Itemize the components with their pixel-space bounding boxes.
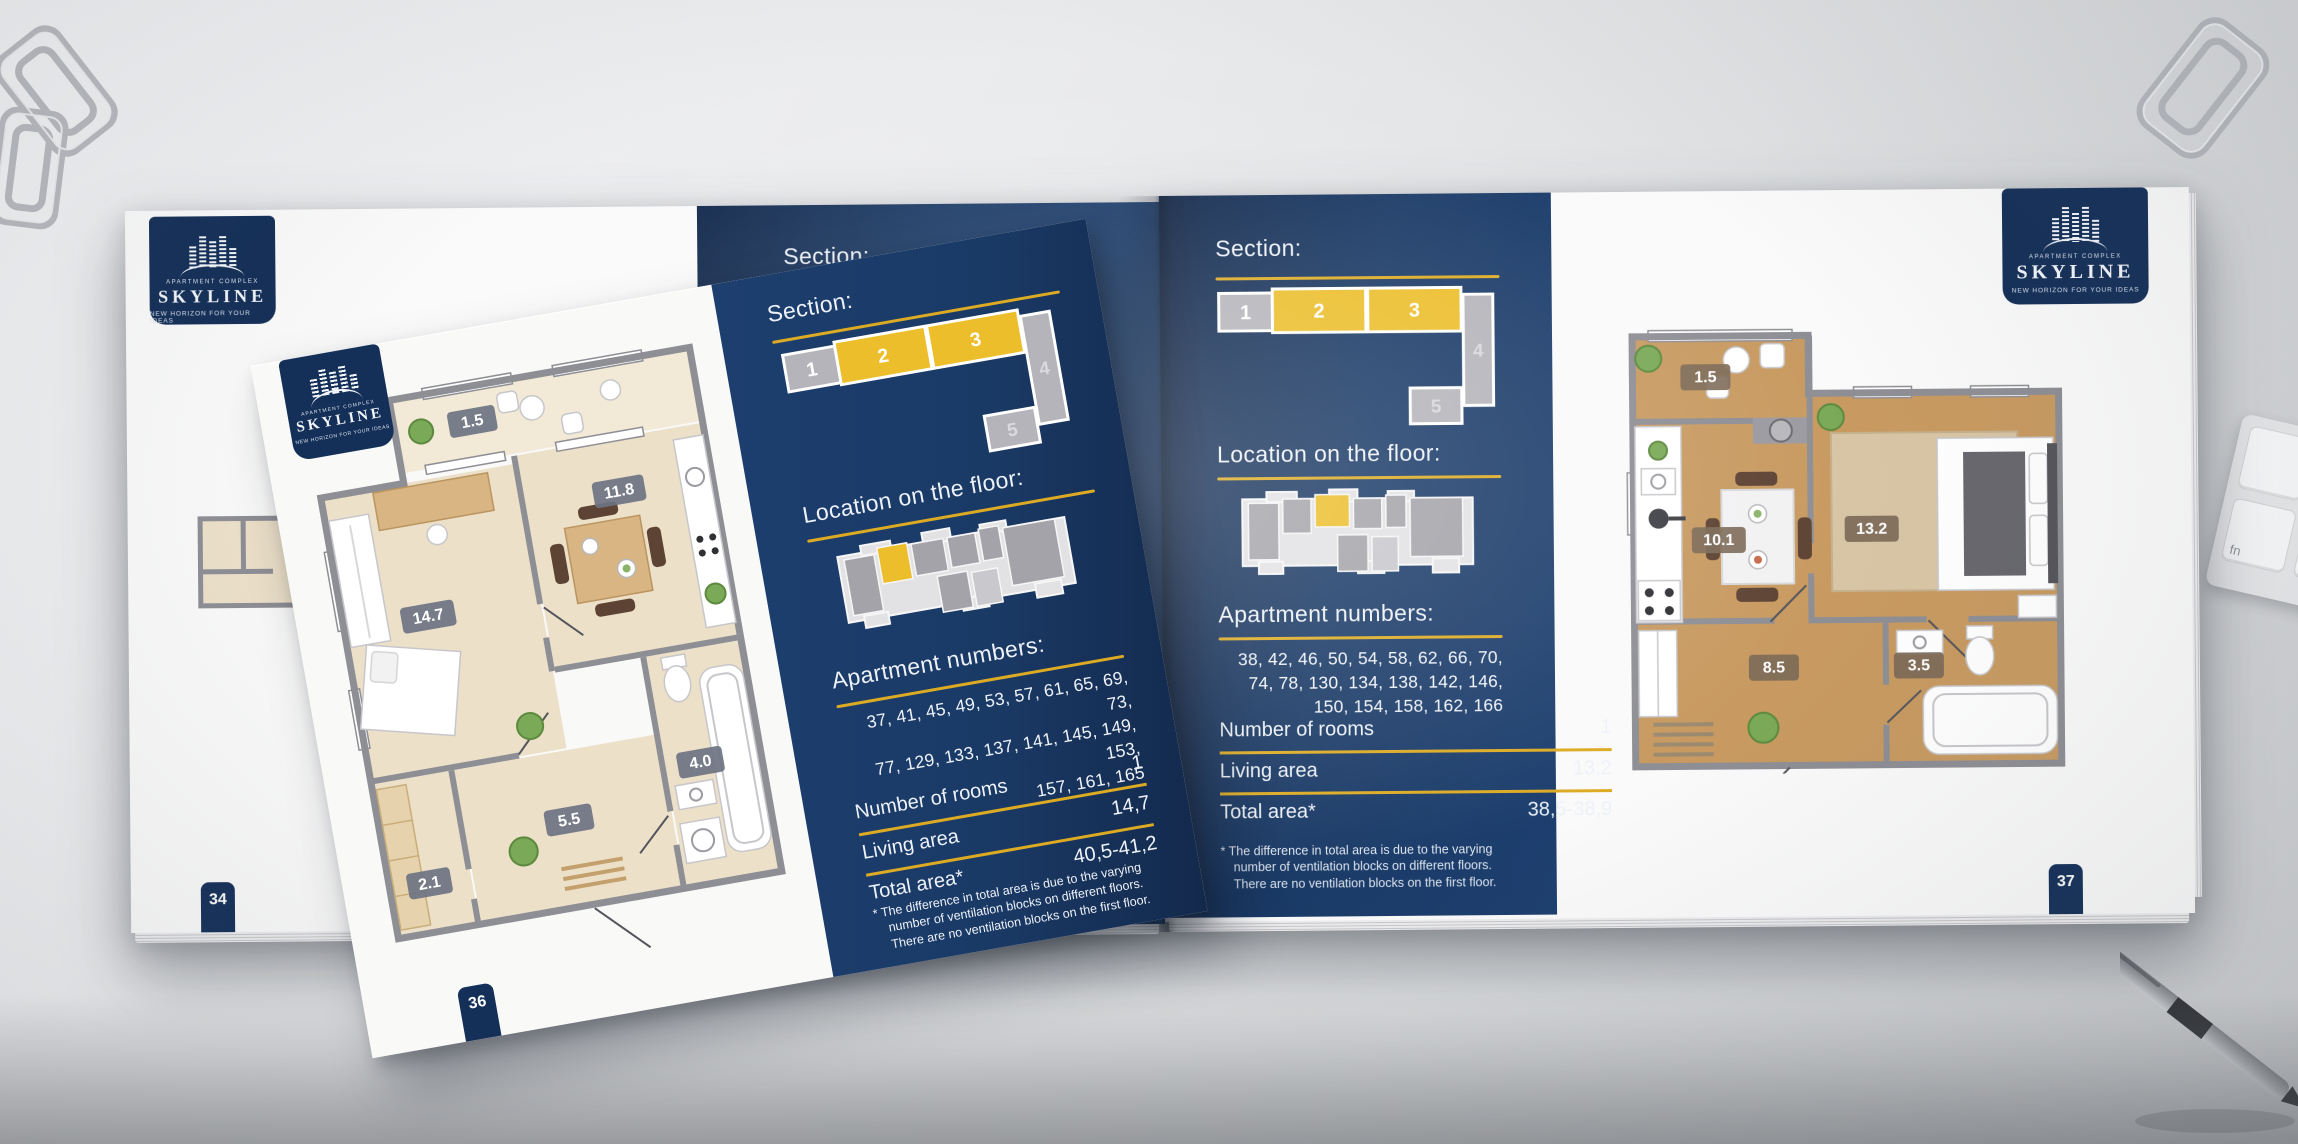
apartment-numbers-line: 74, 78, 130, 134, 138, 142, 146, xyxy=(1219,669,1503,696)
stat-row-total-area: Total area* 38,5-38,9 xyxy=(1220,792,1612,833)
svg-text:13.2: 13.2 xyxy=(1856,521,1887,538)
loose-page-overlay: 1.5 14.7 11.8 5.5 2.1 4.0 xyxy=(250,219,1207,1059)
skyline-logo-overlay: APARTMENT COMPLEX SKYLINE NEW HORIZON FO… xyxy=(278,343,396,461)
section-heading: Section: xyxy=(1215,233,1499,262)
gold-rule xyxy=(1219,635,1503,640)
kitchen-appliances xyxy=(1635,426,1687,622)
stat-value: 1 xyxy=(1130,751,1145,776)
stat-value: 13,2 xyxy=(1573,757,1612,780)
stat-value: 14,7 xyxy=(1110,792,1152,821)
room-label-hallway: 8.5 xyxy=(1749,654,1799,680)
logo-complex-label: APARTMENT COMPLEX xyxy=(166,279,259,286)
section-block-3: 3 xyxy=(927,310,1025,368)
apartment-floor-plan-right: 1.5 10.1 13.2 8.5 3.5 xyxy=(1618,319,2067,775)
room-label-bedroom: 13.2 xyxy=(1845,516,1899,542)
keyboard-corner: fn xyxy=(2204,413,2298,622)
skyline-logo-right: APARTMENT COMPLEX SKYLINE NEW HORIZON FO… xyxy=(2002,187,2149,304)
floor-location-diagram xyxy=(1235,485,1480,582)
apartment-numbers-line: 38, 42, 46, 50, 54, 58, 62, 66, 70, xyxy=(1219,645,1503,672)
svg-text:4: 4 xyxy=(1473,340,1484,361)
logo-tagline: NEW HORIZON FOR YOUR IDEAS xyxy=(150,310,276,325)
page-number-34: 34 xyxy=(201,882,235,932)
svg-text:5: 5 xyxy=(1431,396,1442,417)
skyline-logo-left: APARTMENT COMPLEX SKYLINE NEW HORIZON FO… xyxy=(149,216,276,325)
svg-text:1.5: 1.5 xyxy=(460,411,485,433)
skyline-towers-icon xyxy=(189,230,236,268)
svg-text:3.5: 3.5 xyxy=(1908,657,1930,674)
section-block-5: 5 xyxy=(1410,388,1462,424)
stat-value: 1 xyxy=(1600,716,1611,739)
section-block-5: 5 xyxy=(984,407,1040,451)
page-stack-edge-right xyxy=(2189,193,2202,897)
keyboard-key-fn: fn xyxy=(2220,497,2297,574)
stat-row-rooms: Number of rooms 1 xyxy=(1219,710,1611,754)
svg-text:2.1: 2.1 xyxy=(417,873,442,895)
stat-label: Number of rooms xyxy=(1219,718,1374,742)
logo-name: SKYLINE xyxy=(2016,260,2134,284)
floor-location-diagram xyxy=(829,504,1086,640)
gold-rule xyxy=(1216,275,1500,280)
footnote: * The difference in total area is due to… xyxy=(1220,841,1517,892)
svg-text:3: 3 xyxy=(1409,300,1420,322)
location-heading: Location on the floor: xyxy=(1217,439,1501,468)
svg-text:10.1: 10.1 xyxy=(1703,532,1734,549)
binder-clip-top-right xyxy=(2124,10,2298,190)
right-page: Section: 1 2 3 xyxy=(1159,187,2195,922)
desk-foreground-shadow xyxy=(0,994,2298,1144)
gold-rule xyxy=(1217,475,1501,480)
stat-value: 38,5-38,9 xyxy=(1528,798,1613,822)
stat-row-living-area: Living area 13,2 xyxy=(1220,751,1612,795)
svg-text:1.5: 1.5 xyxy=(1694,369,1716,386)
logo-name: SKYLINE xyxy=(158,286,267,308)
section-block-4: 4 xyxy=(1463,294,1494,405)
section-block-2: 2 xyxy=(834,326,932,384)
svg-text:1: 1 xyxy=(1240,302,1251,324)
room-label-bathroom: 3.5 xyxy=(1894,652,1944,678)
skyline-towers-icon xyxy=(2051,202,2098,242)
room-label-kitchen: 10.1 xyxy=(1692,527,1746,553)
logo-complex-label: APARTMENT COMPLEX xyxy=(2029,254,2122,261)
desk-scene: fn Section: xyxy=(0,0,2298,1144)
logo-tagline: NEW HORIZON FOR YOUR IDEAS xyxy=(2012,286,2140,294)
page-number-37: 37 xyxy=(2049,864,2083,914)
stat-label: Total area* xyxy=(1220,801,1316,825)
svg-text:4.0: 4.0 xyxy=(688,751,713,773)
balcony-hatch xyxy=(1770,419,1792,441)
apartment-numbers-heading: Apartment numbers: xyxy=(1218,599,1502,628)
section-block-1: 1 xyxy=(1219,293,1273,331)
stat-label: Living area xyxy=(1220,760,1318,784)
section-block-2: 2 xyxy=(1272,288,1366,333)
section-diagram: 1 2 3 4 5 xyxy=(1214,285,1503,432)
svg-text:8.5: 8.5 xyxy=(1763,660,1785,677)
svg-text:5.5: 5.5 xyxy=(557,809,582,831)
right-data-panel: Section: 1 2 3 xyxy=(1159,193,1557,918)
keyboard-key-label: fn xyxy=(2228,542,2242,559)
svg-text:2: 2 xyxy=(1313,300,1324,322)
keyboard-key xyxy=(2237,425,2298,502)
room-label-balcony: 1.5 xyxy=(1680,364,1730,390)
section-block-1: 1 xyxy=(783,346,842,392)
section-block-3: 3 xyxy=(1368,287,1462,332)
